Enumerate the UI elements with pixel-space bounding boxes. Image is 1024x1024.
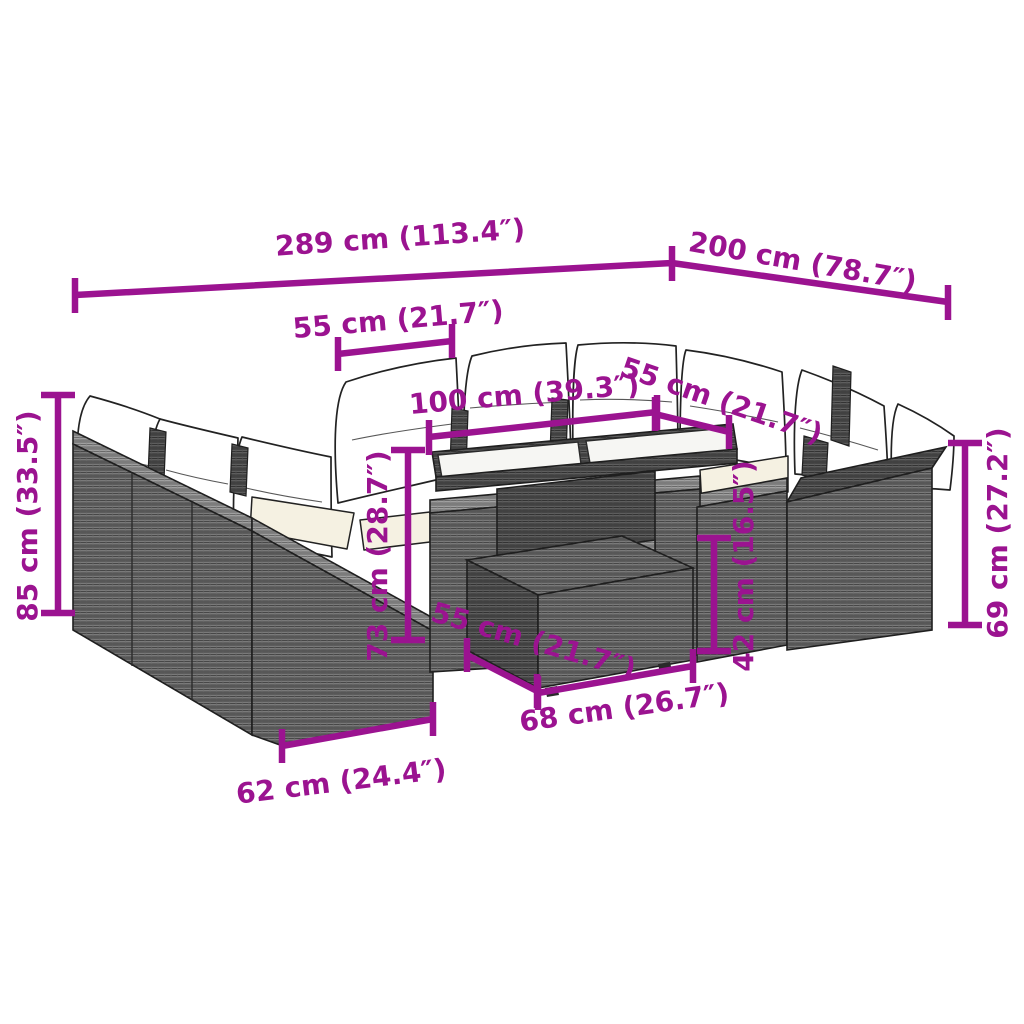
garden-furniture-dimension-diagram: 289 cm (113.4″) 200 cm (78.7″) 55 cm (21…	[0, 0, 1024, 1024]
label-overall-depth: 200 cm (78.7″)	[686, 225, 919, 298]
label-backrest-height: 85 cm (33.5″)	[11, 410, 44, 621]
dimension-diagram-canvas: 289 cm (113.4″) 200 cm (78.7″) 55 cm (21…	[0, 0, 1024, 1024]
dim-line-overall-length	[75, 246, 672, 313]
label-overall-length: 289 cm (113.4″)	[274, 212, 526, 262]
label-side-table-height: 69 cm (27.2″)	[981, 427, 1014, 638]
label-end-module-width: 62 cm (24.4″)	[234, 752, 448, 811]
side-table-cube	[787, 447, 946, 650]
dim-line-side-table-height	[948, 443, 982, 625]
label-table-height: 73 cm (28.7″)	[361, 450, 394, 661]
dim-line-backrest-height	[41, 395, 75, 613]
label-ottoman-height: 42 cm (16.5″)	[727, 460, 760, 671]
label-back-module-width: 55 cm (21.7″)	[291, 294, 504, 345]
